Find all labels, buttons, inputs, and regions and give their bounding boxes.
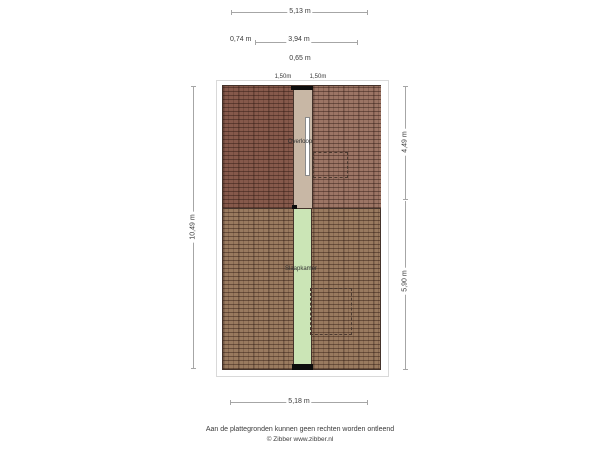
footer-disclaimer: Aan de plattegronden kunnen geen rechten… [0,426,600,433]
dim-tick [231,10,232,15]
stair-railing [305,117,310,176]
dim-tick [403,199,408,200]
floor-plan: Overloop Slaapkamer [222,85,381,370]
roof-hatch-upper-right [312,86,381,208]
dim-label-bottom-total: 5,18 m [286,398,311,405]
dim-tick [191,86,196,87]
dim-tick [403,86,408,87]
stairwell-dashed-outline [313,152,348,178]
roof-hatch-upper-left [223,86,294,208]
dim-tick [367,10,368,15]
landing-label: Overloop [288,139,312,145]
dim-tick [255,40,256,45]
dim-label-right-lower: 5,90 m [401,267,410,294]
wall-segment-top [291,86,313,90]
dim-tick [357,40,358,45]
dim-label-right-upper: 4,49 m [401,128,410,155]
bedroom-strip [293,209,312,364]
dim-label-top-total: 5,13 m [287,8,312,15]
bedroom-label: Slaapkamer [285,266,317,272]
dim-tick [191,368,196,369]
dim-label-top-mid-segment: 3,94 m [286,36,311,43]
dim-tick [230,400,231,405]
floorplan-page: 5,13 m 0,74 m 3,94 m 0,65 m 1,50m 1,50m … [0,0,600,450]
dim-label-top-small: 0,65 m [287,55,312,62]
dim-tick [403,369,408,370]
dormer-dashed-outline [310,288,352,335]
footer-credit: © Zibber www.zibber.nl [0,436,600,443]
dim-label-left-total: 10,49 m [189,211,198,242]
chimney-block [292,364,313,370]
dim-label-top-left-segment: 0,74 m [228,36,253,43]
dim-tick [367,400,368,405]
